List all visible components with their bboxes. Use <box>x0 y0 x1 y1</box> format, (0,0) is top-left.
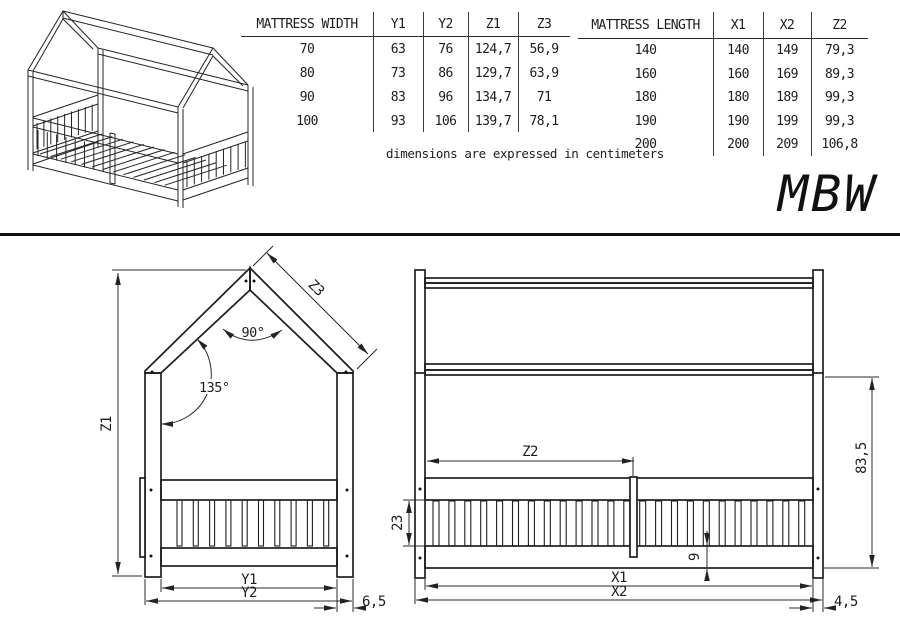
iso-mattress-platform-slats <box>40 134 227 185</box>
side-left-post <box>415 270 425 578</box>
front-roof-left-beam <box>145 268 250 373</box>
front-view: Z1 Z3 90° 135° Y1 <box>99 246 386 612</box>
isometric-bed-view <box>28 11 253 208</box>
side-dim-z2: Z2 <box>427 444 634 476</box>
side-eave-rail-lower <box>425 370 813 375</box>
front-bottom-rail <box>161 548 337 566</box>
svg-text:4,5: 4,5 <box>834 594 858 610</box>
side-eave-rail-upper <box>425 364 813 370</box>
front-screw-dots <box>150 280 349 558</box>
front-dim-post-width: 6,5 <box>314 594 386 610</box>
svg-text:Z3: Z3 <box>305 277 328 300</box>
side-guard-slats <box>433 501 805 546</box>
svg-text:Z2: Z2 <box>522 444 538 460</box>
front-dim-z3: Z3 <box>253 246 377 369</box>
length-table-separators <box>578 12 868 156</box>
svg-text:83,5: 83,5 <box>854 442 870 474</box>
front-guard-slats <box>177 500 329 546</box>
front-top-rail <box>161 480 337 500</box>
side-dim-wall-height: 83,5 <box>824 377 879 568</box>
front-roof-right-beam <box>250 268 353 373</box>
product-code: MBW <box>778 167 896 222</box>
svg-text:Y2: Y2 <box>241 585 257 601</box>
front-right-post <box>337 373 353 577</box>
front-angle-eave: 135° <box>161 339 230 424</box>
side-screw-dots <box>419 488 820 560</box>
svg-text:Z1: Z1 <box>99 416 115 432</box>
mattress-width-table: MATTRESS WIDTH Y1 Y2 Z1 Z3 70 63 76 124,… <box>241 12 570 133</box>
mattress-length-table: MATTRESS LENGTH X1 X2 Z2 140 140 149 79,… <box>578 12 868 157</box>
side-view: Z2 23 9 83,5 X1 <box>390 270 879 612</box>
width-table-separators <box>241 12 570 132</box>
front-side-board-edge <box>140 478 145 557</box>
side-dim-x2: X2 <box>415 579 823 612</box>
side-bottom-rail <box>425 546 813 568</box>
side-dim-slat-band: 23 <box>390 500 425 546</box>
technical-drawing-sheet: { "product_code": "MBW", "note": "dimens… <box>0 0 900 630</box>
svg-text:9: 9 <box>687 553 703 561</box>
units-note: dimensions are expressed in centimeters <box>386 146 664 161</box>
svg-text:X2: X2 <box>611 584 627 600</box>
side-ridge-beam-lower <box>425 283 813 288</box>
svg-text:135°: 135° <box>199 380 230 396</box>
side-top-rail <box>425 478 813 500</box>
side-dim-bottom-rail: 9 <box>687 531 707 581</box>
front-angle-peak: 90° <box>223 325 282 341</box>
side-right-post <box>813 270 823 578</box>
svg-text:90°: 90° <box>242 325 265 341</box>
iso-foot-guard-slats <box>187 141 245 187</box>
svg-text:23: 23 <box>390 515 406 531</box>
svg-text:6,5: 6,5 <box>362 594 386 610</box>
side-entrance-divider <box>630 477 637 557</box>
front-left-post <box>145 373 161 577</box>
